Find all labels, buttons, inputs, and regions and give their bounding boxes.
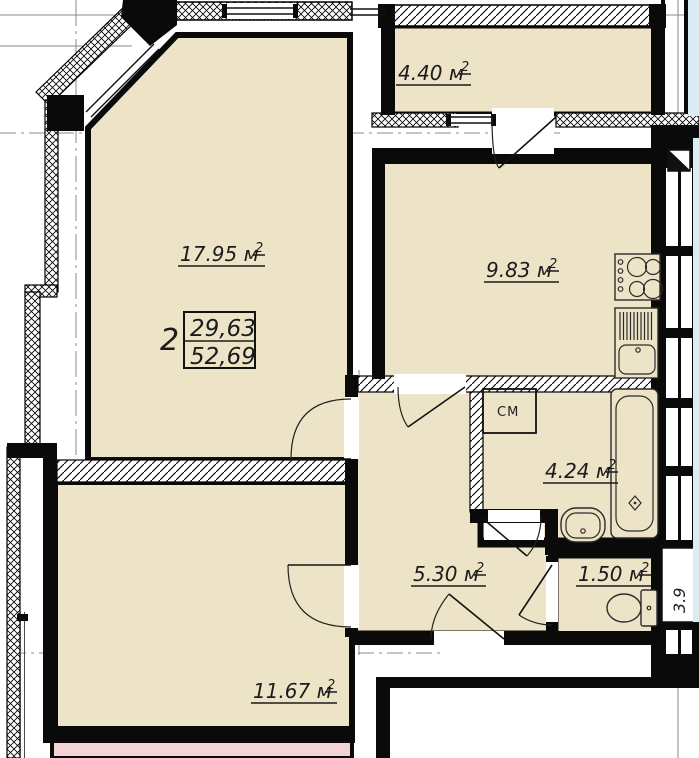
adjacent-room-pink	[52, 741, 352, 758]
washing-machine-label: СМ	[497, 405, 519, 420]
kitchen-sink	[615, 308, 658, 378]
kitchen-door-gap	[394, 374, 466, 394]
shaft-depth-label: 3.9	[670, 588, 689, 613]
corridor-wall-horizontal	[376, 677, 699, 688]
floor-plan: СМ 17.95 м 2 9.83 м 2 4.40 м 2 4.24 м 2	[0, 0, 699, 758]
entrance-door-gap	[434, 631, 504, 645]
living-door-gap	[344, 397, 359, 459]
balcony-area-sup: 2	[461, 60, 469, 75]
bedroom-area-value: 11.67 м	[253, 679, 332, 703]
room-label-bedroom: 11.67 м 2	[251, 678, 337, 703]
balcony-area-value: 4.40 м	[398, 61, 464, 85]
bedroom-bottom-wall	[43, 727, 355, 743]
hallway-area-value: 5.30 м	[413, 562, 479, 586]
corridor-wall-vertical	[376, 688, 390, 758]
living-area-sup: 2	[255, 241, 263, 256]
adjacent-areas	[52, 741, 352, 758]
room-label-hallway: 5.30 м 2	[411, 561, 486, 586]
room-label-bathroom: 4.24 м 2	[543, 458, 618, 483]
bathroom-area-value: 4.24 м	[545, 459, 611, 483]
wc-bottom-wall	[556, 631, 672, 645]
apartment-area-upper: 29,63	[190, 316, 256, 342]
bathroom-door-gap	[488, 510, 540, 522]
stove	[615, 254, 663, 300]
hall-bottom-wall-right	[504, 631, 560, 645]
room-label-living: 17.95 м 2	[178, 241, 265, 266]
bedroom-area-sup: 2	[327, 678, 335, 693]
exterior-wall-left-lower	[7, 447, 20, 758]
hall-bottom-wall-left	[352, 631, 434, 645]
kitchen-area-value: 9.83 м	[486, 258, 552, 282]
wc-area-sup: 2	[641, 561, 649, 576]
living-area-value: 17.95 м	[180, 242, 259, 266]
exterior-wall-left-mid	[25, 292, 40, 447]
room-label-wc: 1.50 м 2	[576, 561, 651, 586]
wall-block-diagonal-end	[47, 95, 84, 131]
room-label-balcony: 4.40 м 2	[396, 60, 471, 85]
bedroom-door-gap	[344, 565, 359, 628]
exterior-wall-below-balcony-right	[556, 113, 699, 127]
exterior-wall-below-balcony-left	[372, 113, 458, 127]
shaft-symbol	[668, 150, 690, 171]
bathroom-wc-wall	[548, 538, 674, 556]
wc-area-value: 1.50 м	[578, 562, 644, 586]
shaft-depth-value: 3.9	[670, 588, 689, 613]
bathtub	[611, 389, 658, 538]
window-balcony-kitchen	[446, 114, 496, 126]
adjacent-area-blue-top	[688, 0, 699, 116]
apartment-number: 2	[160, 323, 179, 358]
bedroom-left-wall	[43, 445, 57, 737]
bathroom-door-threshold	[484, 523, 544, 540]
kitchen-area-sup: 2	[549, 257, 557, 272]
partition-living-bedroom	[57, 460, 347, 482]
bathroom-area-sup: 2	[608, 458, 616, 473]
partition-bathroom-left	[470, 392, 483, 512]
joint-wall-left	[661, 0, 665, 114]
window-living-top	[222, 3, 298, 19]
apartment-area-lower: 52,69	[190, 344, 256, 370]
hallway-area-sup: 2	[476, 561, 484, 576]
washbasin	[561, 508, 605, 542]
kitchen-left-wall	[372, 161, 385, 379]
adjacent-area-blue-right	[693, 138, 699, 622]
balcony-parapet	[381, 5, 665, 26]
floor-plan-drawing: СМ 17.95 м 2 9.83 м 2 4.40 м 2 4.24 м 2	[0, 0, 699, 758]
joint-wall-right	[684, 0, 688, 114]
parapet-end-left	[378, 4, 395, 28]
room-label-kitchen: 9.83 м 2	[484, 257, 559, 282]
